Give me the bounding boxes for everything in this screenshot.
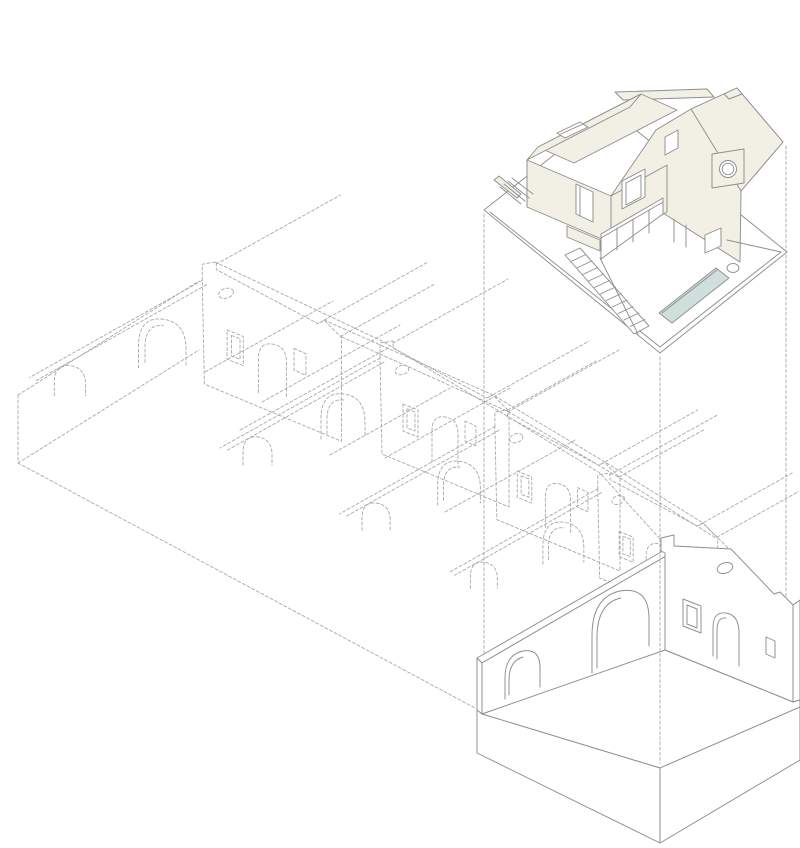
- party-wall-end: [477, 658, 482, 714]
- side-wall-sliver: [793, 600, 800, 702]
- ghost-bay-3: [340, 350, 705, 571]
- ghost-bay-1: [29, 195, 435, 441]
- new-house: [484, 88, 787, 353]
- rear-parapet-band: [615, 89, 714, 100]
- retained-shell: [477, 535, 800, 843]
- diagram-canvas: [0, 0, 800, 848]
- gable-window-reveal: [687, 605, 697, 628]
- planter: [727, 264, 739, 273]
- ghost-bay-2: [220, 279, 596, 507]
- axonometric-diagram: [0, 0, 800, 848]
- small-slot-opening: [766, 637, 775, 658]
